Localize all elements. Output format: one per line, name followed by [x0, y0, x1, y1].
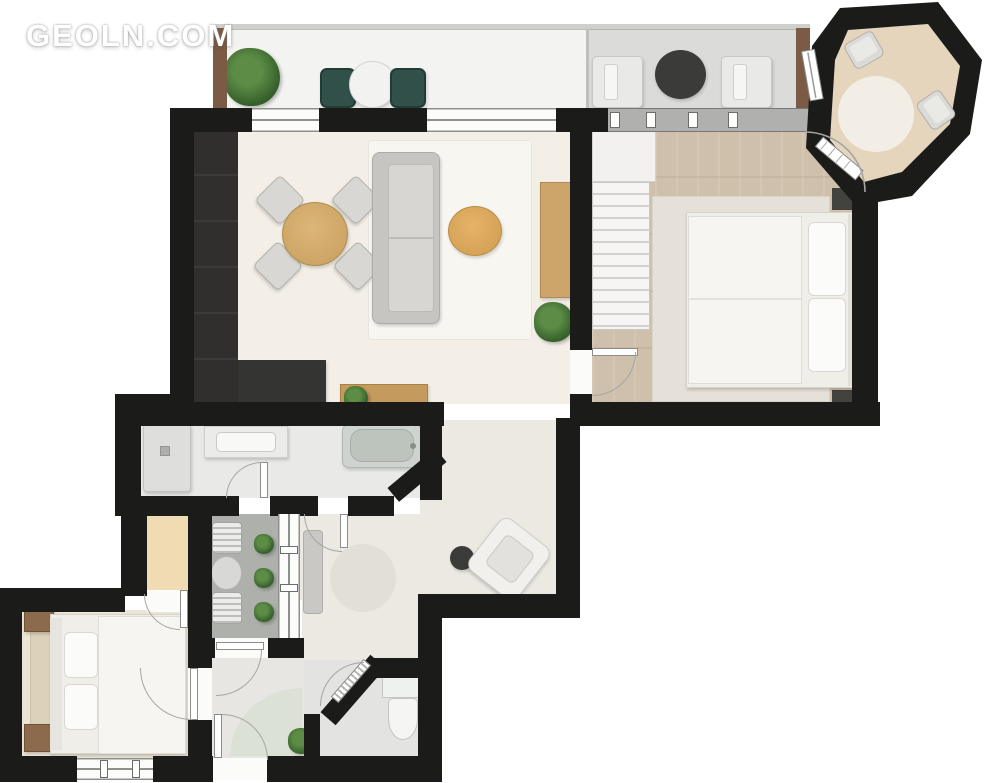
bed2-pillow — [64, 684, 98, 730]
wall-living-bottom — [140, 402, 444, 426]
dining-table — [282, 202, 348, 266]
window-post — [100, 760, 108, 778]
sofa-cushion-line — [389, 237, 433, 239]
hall-round-rug — [330, 544, 396, 612]
loggia-plant-3 — [254, 602, 274, 622]
loggia-plant-1 — [254, 534, 274, 554]
wall-hall-bottom — [420, 594, 580, 618]
wall-living-bedroom — [570, 108, 592, 352]
closet-floor — [147, 514, 188, 594]
octagon-room — [756, 0, 984, 232]
living-window-1 — [252, 108, 319, 132]
bed-duvet — [688, 216, 802, 384]
living-window-2 — [427, 108, 556, 132]
window-post — [132, 760, 140, 778]
bed2-headboard — [50, 618, 62, 750]
console — [540, 182, 574, 298]
staircase — [592, 182, 650, 330]
wall-bath-bottom — [348, 496, 394, 516]
balcony-dark-table — [655, 50, 706, 99]
wall-bedroom2-left — [0, 588, 22, 782]
wall — [192, 108, 252, 132]
entrance-door-leaf — [214, 714, 222, 758]
wall-loggia-stub — [278, 496, 300, 516]
wall-living-left — [170, 108, 194, 406]
wall-south — [267, 756, 442, 782]
loggia-plant-2 — [254, 568, 274, 588]
bathtub-faucet — [410, 443, 416, 449]
bed-pillow — [808, 222, 846, 296]
stair-landing — [592, 130, 656, 182]
bed2-pillow — [64, 632, 98, 678]
octagon-rug — [838, 76, 914, 152]
wardrobe — [194, 130, 238, 404]
sink-basin — [216, 432, 276, 452]
wall-loggia-stub — [188, 638, 215, 658]
wall-vestibule-left — [188, 720, 212, 758]
bed-duvet-seam — [689, 298, 801, 300]
wall-loggia-stub — [278, 638, 300, 658]
wall-south — [153, 756, 213, 782]
balcony-plant — [224, 48, 280, 106]
shower-knob — [160, 446, 170, 456]
wall-bedroom-bottom — [592, 402, 880, 426]
closet-door-leaf — [180, 590, 188, 628]
window-post — [688, 112, 698, 128]
loggia-chair-bottom — [212, 592, 242, 624]
balcony-white-chair-right-seat — [733, 64, 747, 100]
window-post — [280, 584, 298, 592]
balcony-white-chair-left-seat — [604, 64, 618, 100]
loggia-door-leaf — [216, 642, 264, 650]
watermark: GEOLN.COM — [26, 18, 235, 54]
loggia-table — [211, 556, 242, 590]
wall-bedroom2-top — [20, 588, 125, 612]
bedroom2-window — [77, 758, 153, 780]
balcony-divider — [586, 29, 589, 112]
entrance-door-gap — [213, 758, 267, 780]
pouf — [448, 206, 502, 256]
floor-plan: GEOLN.COM — [0, 0, 984, 783]
wall-wc-right — [418, 594, 442, 782]
shower-cabin — [143, 424, 191, 492]
loggia-window-right — [278, 514, 300, 638]
window-post — [728, 112, 738, 128]
loggia-chair-top — [212, 522, 242, 554]
window-post — [610, 112, 620, 128]
wall-hall-right — [556, 418, 580, 618]
living-plant — [534, 302, 574, 342]
window-post — [646, 112, 656, 128]
bedroom-door-gap — [570, 350, 592, 394]
balcony-green-chair-right — [390, 68, 426, 108]
toilet-bowl — [388, 698, 418, 740]
window-post — [280, 546, 298, 554]
wall-wc-vestibule — [304, 714, 320, 758]
bed-pillow — [808, 298, 846, 372]
balcony-white-table — [349, 61, 396, 108]
bathtub-basin — [350, 429, 414, 462]
wall — [319, 108, 427, 132]
tv-unit — [238, 360, 326, 406]
wall-bath-bottom — [121, 496, 239, 516]
